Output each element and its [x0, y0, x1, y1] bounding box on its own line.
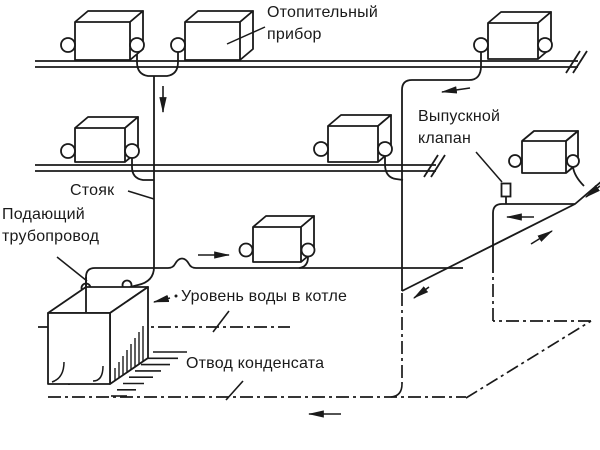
- label-water-level: Уровень воды в котле: [181, 286, 347, 308]
- radiator-icon: [509, 131, 579, 173]
- radiator-drop: [154, 52, 178, 76]
- leader-water-level: [154, 298, 170, 302]
- leader-supply-pipeline: [57, 257, 87, 281]
- corner-arc: [391, 384, 402, 397]
- radiator-icon: [314, 115, 392, 162]
- boiler-front-face: [48, 313, 110, 384]
- radiator-icon: [474, 12, 552, 59]
- leader-dot: [175, 295, 178, 298]
- radiator-icon: [61, 117, 139, 162]
- radiator-drop: [573, 167, 584, 186]
- radiator-icon: [240, 216, 315, 262]
- flow-arrow-left: [442, 88, 470, 92]
- diagonal-branch-pipe: [402, 181, 600, 291]
- release-valve-icon: [502, 184, 511, 205]
- label-heating-device: Отопительный прибор: [267, 2, 378, 46]
- leader-release-valve: [476, 152, 502, 182]
- label-release-valve: Выпускной клапан: [418, 106, 500, 150]
- slope-mark: [213, 311, 229, 332]
- pipe-network: [35, 51, 600, 312]
- pipe-break-mark: [573, 51, 587, 73]
- label-condensate-drain: Отвод конденсата: [186, 353, 324, 375]
- pipe-break-mark: [431, 155, 445, 177]
- radiator-icon: [171, 11, 253, 60]
- radiator-drop: [132, 158, 154, 180]
- radiator-icon: [61, 11, 144, 60]
- boiler: [48, 287, 187, 396]
- condensate-diagonal: [466, 321, 591, 398]
- flow-arrow-down-left: [414, 287, 429, 298]
- radiators: [61, 11, 579, 262]
- label-supply-pipeline: Подающий трубопровод: [2, 204, 99, 248]
- flow-arrow-up-right: [531, 231, 552, 244]
- heating-system-diagram: Отопительный прибор Выпускной клапан Сто…: [0, 0, 600, 450]
- pipe-break-mark: [566, 51, 580, 73]
- radiator-drop: [137, 52, 154, 76]
- label-riser: Стояк: [70, 180, 114, 202]
- leader-riser: [128, 191, 154, 199]
- pipe-break-mark: [424, 155, 438, 177]
- radiator-drop: [385, 156, 403, 180]
